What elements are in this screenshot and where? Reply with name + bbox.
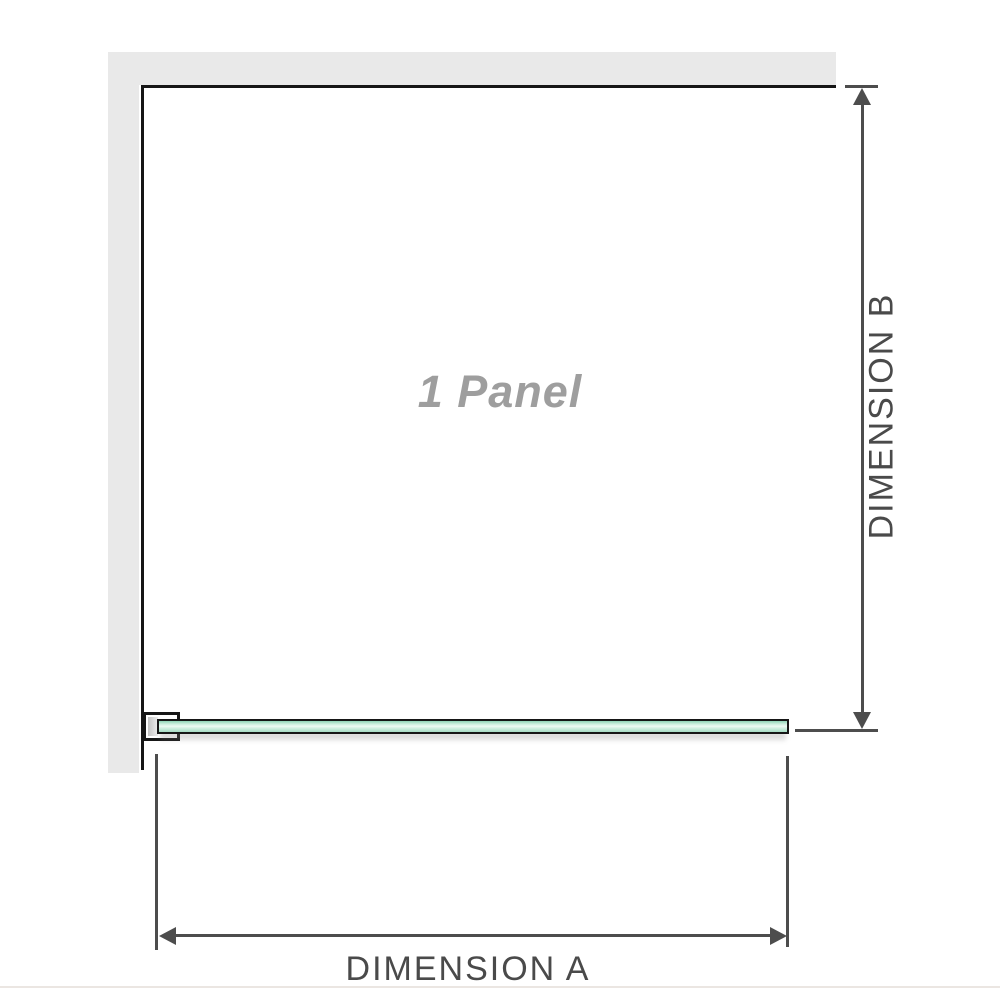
arrow-up-icon [853,88,871,105]
glass-panel-bar [157,719,789,734]
bottom-divider [0,986,1000,988]
panel-dimension-diagram: 1 Panel DIMENSION B DIMENSION A [0,0,1000,1000]
dimension-b-bottom-tick [795,729,878,732]
wall-left [108,52,139,773]
arrow-right-icon [770,927,787,945]
dimension-a-left-extension-line [155,754,158,950]
dimension-a-line [165,934,780,937]
panel-label: 1 Panel [300,366,700,418]
dimension-b-label: DIMENSION B [863,293,902,540]
arrow-left-icon [159,927,176,945]
dimension-a-right-extension-line [786,756,789,947]
panel-outline [141,85,836,770]
arrow-down-icon [853,712,871,729]
dimension-a-label: DIMENSION A [268,950,668,989]
wall-top [108,52,836,85]
